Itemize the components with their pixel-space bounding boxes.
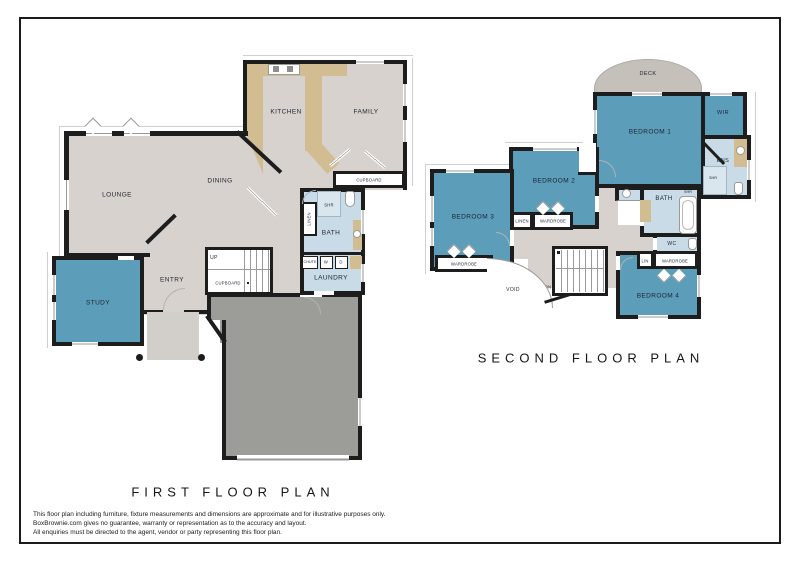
bedroom1-label: BEDROOM 1 — [629, 129, 672, 136]
wir-top-window — [710, 92, 732, 96]
bath2-basin-icon — [622, 189, 631, 198]
wardrobe3-label: WARDROBE — [451, 262, 477, 267]
lin-label: LIN — [641, 259, 648, 264]
ens-toilet-icon — [734, 182, 743, 195]
family-right-window — [403, 120, 407, 142]
stair-rail — [556, 268, 604, 269]
family-label: FAMILY — [353, 109, 378, 116]
bedroom1-deck-door — [632, 92, 662, 96]
laundry-door-gap — [314, 291, 334, 295]
bedroom4-bottom-window — [638, 315, 668, 319]
kitchen-label: KITCHEN — [270, 109, 301, 116]
lounge-left-window — [64, 180, 69, 210]
eave-line — [755, 92, 756, 202]
bath2-label: BATH — [655, 196, 672, 202]
basin-icon — [353, 230, 361, 238]
study-left-window — [52, 275, 56, 295]
porch — [147, 312, 199, 360]
bath-right-window — [361, 210, 365, 234]
dryer-label: D — [339, 260, 342, 265]
laundry-right-window — [361, 264, 365, 282]
stair-treads — [239, 250, 270, 292]
wir-label: WIR — [717, 110, 729, 116]
first-floor-title: FIRST FLOOR PLAN — [131, 485, 334, 500]
porch-post — [198, 354, 205, 361]
bedroom2-top-window — [533, 147, 577, 151]
bath2-wall-nib — [640, 200, 651, 222]
wc-toilet-icon — [688, 238, 697, 250]
stairs-cupboard-label: CUPBOARD — [215, 281, 240, 286]
eave-line — [243, 55, 413, 56]
shower-label: SHR — [324, 203, 333, 208]
garage-right-window — [358, 398, 362, 426]
wc-label: WC — [667, 241, 676, 247]
stair-treads — [556, 250, 604, 292]
bath2-shower-label: SHR — [684, 190, 692, 194]
bedroom2-corner-notch — [579, 143, 596, 174]
garage-door — [237, 455, 349, 464]
study-label: STUDY — [86, 300, 110, 307]
washer-label: W — [324, 260, 328, 265]
chute-label: CHUTE — [303, 260, 316, 264]
lounge-label: LOUNGE — [102, 192, 132, 199]
toilet-icon — [345, 191, 355, 207]
stair-dot — [557, 251, 560, 254]
bedroom3-door-gap — [510, 230, 514, 246]
ens-shower-stall — [703, 166, 727, 195]
ens-label: ENS — [717, 158, 730, 164]
stove-burner — [287, 66, 293, 72]
stairs-up-label: UP — [210, 255, 218, 261]
stair-rail — [208, 269, 270, 270]
bedroom4-right-window — [697, 275, 701, 297]
bedroom3-left-window — [430, 228, 434, 246]
disclaimer-line-1: This floor plan including furniture, fix… — [33, 511, 386, 520]
eave-line — [47, 252, 48, 348]
bedroom2-notch-wall — [578, 172, 596, 175]
bedroom3-top-window — [446, 169, 474, 173]
wc-door-gap — [653, 238, 657, 250]
bath-laundry-divider — [300, 252, 365, 255]
eave-line — [59, 126, 60, 263]
deck-label: DECK — [640, 71, 657, 77]
floorplan-page: CUPBOARD STUDY ENTRY UP CUPBOARD — [0, 0, 800, 566]
garage-main — [222, 320, 362, 460]
bath-label: BATH — [322, 230, 340, 237]
eave-line — [425, 164, 517, 165]
void-label: VOID — [506, 287, 520, 293]
bedroom3-left-window — [430, 196, 434, 222]
disclaimer-line-2: BoxBrownie.com gives no guarantee, warra… — [33, 520, 307, 529]
bedroom1-left-window — [593, 110, 597, 134]
porch-post — [136, 354, 143, 361]
eave-line — [425, 164, 426, 274]
ens-right-window — [747, 160, 751, 180]
laundry-label: LAUNDRY — [314, 275, 348, 282]
family-right-window — [403, 84, 407, 106]
bedroom3-label: BEDROOM 3 — [452, 214, 495, 221]
study-bottom-window — [72, 342, 98, 346]
linen-label: LINEN — [307, 212, 312, 225]
eave-line — [505, 142, 583, 143]
entry-label: ENTRY — [160, 277, 184, 284]
study-door-gap — [118, 256, 134, 260]
kitchen-top-window — [356, 60, 384, 64]
second-floor-title: SECOND FLOOR PLAN — [478, 351, 705, 366]
ens-basin-icon — [736, 146, 745, 155]
bedroom2-door-gap — [595, 196, 599, 212]
linen2-label: LINEN — [515, 219, 528, 224]
bedroom4-label: BEDROOM 4 — [637, 293, 680, 300]
hall-cupboard-label: CUPBOARD — [356, 178, 381, 183]
eave-line — [412, 58, 413, 186]
study-left-window — [52, 302, 56, 320]
disclaimer-line-3: All enquiries must be directed to the ag… — [33, 529, 282, 538]
cupboard-dot — [247, 282, 249, 284]
bathtub-inner — [682, 200, 694, 230]
bedroom2-label: BEDROOM 2 — [533, 178, 576, 185]
ens-shower-label: SHR — [709, 176, 717, 180]
wardrobe4-label: WARDROBE — [662, 259, 688, 264]
wardrobe2-label: WARDROBE — [540, 219, 566, 224]
stove-burner — [273, 66, 279, 72]
dining-label: DINING — [207, 178, 232, 185]
